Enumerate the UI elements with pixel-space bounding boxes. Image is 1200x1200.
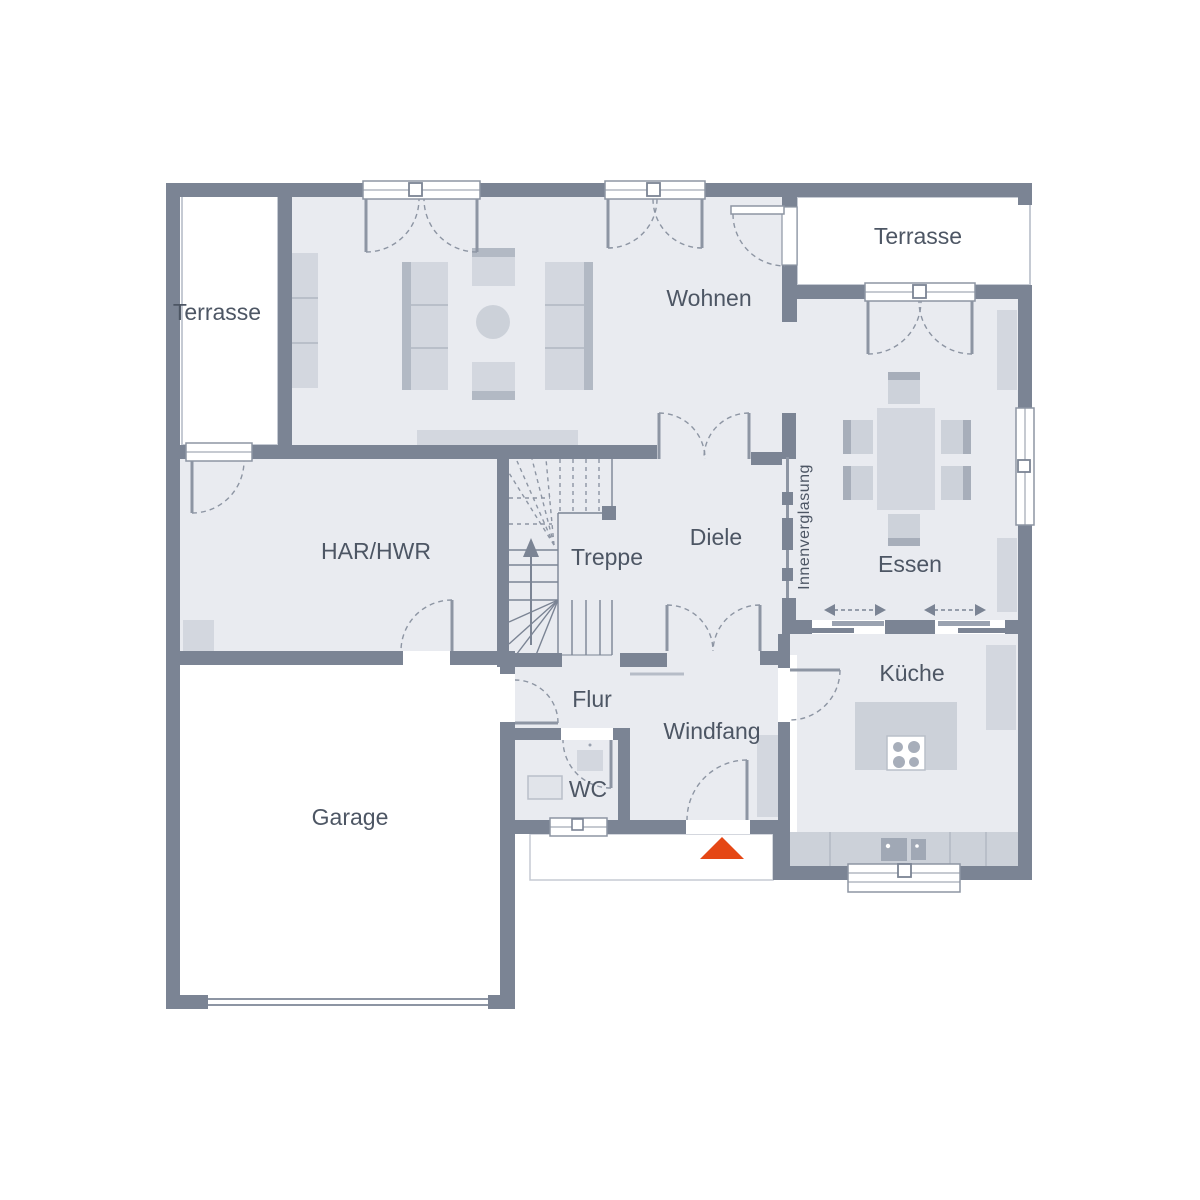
wall-wc-right xyxy=(618,728,630,820)
window-handle-icon xyxy=(898,864,911,877)
wall-top xyxy=(166,183,1032,197)
label-innenverglasung: Innenverglasung xyxy=(796,464,813,590)
kitchen-counter xyxy=(790,832,1018,866)
wall-porch-right xyxy=(773,820,790,880)
window-handle-icon xyxy=(913,285,926,298)
garage-door xyxy=(208,995,488,1009)
wc-basin xyxy=(528,776,562,799)
room-label-har-hwr: HAR/HWR xyxy=(321,538,431,564)
side-table xyxy=(476,305,510,339)
kitchen-island xyxy=(855,702,957,770)
har-appliance xyxy=(183,620,214,651)
sideboard xyxy=(417,430,578,445)
cooktop xyxy=(887,736,925,770)
wall-windfang-stub xyxy=(760,651,782,665)
room-label-terrasse-right: Terrasse xyxy=(874,223,962,249)
room-label-kueche: Küche xyxy=(879,660,944,686)
wall-right-stub xyxy=(1018,183,1032,205)
room-label-essen: Essen xyxy=(878,551,942,577)
wall-right xyxy=(1018,285,1032,880)
window-kueche xyxy=(848,864,960,892)
room-label-treppe: Treppe xyxy=(571,544,643,570)
window-handle-icon xyxy=(572,819,583,830)
window-handle-icon xyxy=(409,183,422,196)
room-label-flur: Flur xyxy=(572,686,612,712)
window-handle-icon xyxy=(647,183,660,196)
kitchen-tall-unit xyxy=(986,645,1016,730)
stair-newel xyxy=(602,506,616,520)
floor-plan-page: Terrasse Wohnen Terrasse HAR/HWR Treppe … xyxy=(0,0,1200,1200)
armchair-bottom xyxy=(472,362,515,400)
wall-diele-stub xyxy=(751,452,782,465)
room-label-wc: WC xyxy=(569,776,607,802)
wall-slide-b xyxy=(885,620,935,634)
window-essen-right xyxy=(1016,408,1034,525)
room-label-terrasse-left: Terrasse xyxy=(173,299,261,325)
wall-stair-bottom-b xyxy=(620,653,667,667)
wall-terrasse-left xyxy=(278,183,292,457)
sofa-right xyxy=(545,262,593,390)
sofa-left xyxy=(402,262,448,390)
room-label-wohnen: Wohnen xyxy=(666,285,751,311)
door-leaf xyxy=(731,206,784,214)
dining-table xyxy=(877,408,935,510)
sink xyxy=(881,838,907,861)
armchair-top xyxy=(472,248,515,286)
glazing-top-stub xyxy=(782,413,796,459)
wall-kueche-left-b xyxy=(778,720,790,820)
room-label-diele: Diele xyxy=(690,524,742,550)
essen-cabinet-bottom xyxy=(997,538,1017,612)
essen-cabinet-top xyxy=(997,310,1017,390)
wall-stair-left xyxy=(497,459,509,665)
window-handle-icon xyxy=(1018,460,1030,472)
room-label-garage: Garage xyxy=(312,804,389,830)
shelf-unit xyxy=(292,253,318,388)
floor-plan: Terrasse Wohnen Terrasse HAR/HWR Treppe … xyxy=(0,0,1200,1200)
window-wc xyxy=(550,818,607,836)
room-label-windfang: Windfang xyxy=(663,718,760,744)
